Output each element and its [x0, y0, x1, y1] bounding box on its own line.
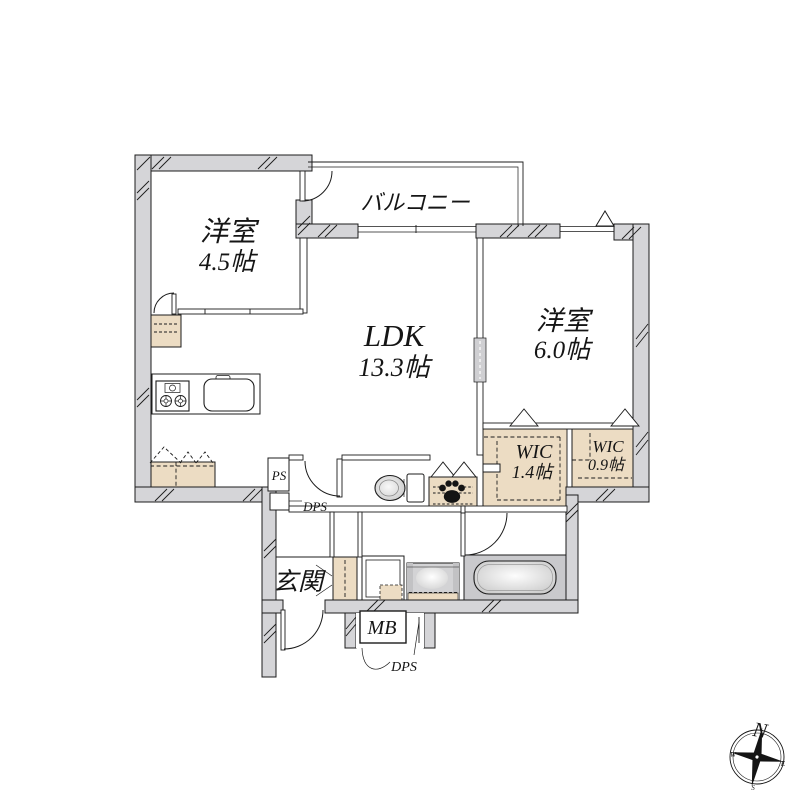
- label-ps: PS: [271, 468, 287, 483]
- wall-toilet-top-b: [342, 455, 430, 460]
- label-room-west60: 洋室: [536, 306, 594, 336]
- wall-bottom-a: [262, 600, 283, 613]
- bath-room: [464, 555, 566, 601]
- dps-side-box: [270, 493, 289, 510]
- floor-plan-page: 洋室 4.5帖 バルコニー LDK 13.3帖 洋室 6.0帖 WIC 1.4帖…: [0, 0, 800, 800]
- dps-bottom-leader-b: [362, 648, 390, 669]
- label-genkan: 玄関: [273, 568, 326, 596]
- size-ldk: 13.3帖: [358, 353, 434, 382]
- wall-right: [633, 224, 649, 492]
- label-dps-bottom: DPS: [390, 660, 417, 675]
- wall-top: [135, 155, 312, 171]
- label-wic14: WIC: [516, 441, 553, 463]
- wall-hall-top: [289, 506, 567, 512]
- size-room-west45: 4.5帖: [199, 249, 258, 276]
- toilet-icon: [375, 474, 424, 502]
- wic-divider-wall: [567, 429, 572, 487]
- west60-window-triangle: [596, 211, 614, 226]
- label-ldk: LDK: [363, 318, 427, 353]
- label-room-west45: 洋室: [200, 217, 260, 248]
- wall-hall-vertical-b: [358, 512, 362, 557]
- wall-mb-pocket-right: [424, 613, 435, 648]
- size-room-west60: 6.0帖: [534, 337, 593, 364]
- label-balcony: バルコニー: [360, 190, 471, 215]
- size-wic14: 1.4帖: [512, 462, 556, 482]
- washbasin-icon: [407, 563, 459, 601]
- closet-west45: [150, 315, 181, 347]
- wall-washroom-left-stub: [461, 506, 465, 513]
- compass-east-label: E: [780, 760, 786, 768]
- floor-plan-drawing: 洋室 4.5帖 バルコニー LDK 13.3帖 洋室 6.0帖 WIC 1.4帖…: [0, 0, 800, 800]
- wall-west45-right: [300, 238, 307, 313]
- compass-south-label: S: [751, 784, 755, 792]
- west60-top-window: [560, 227, 614, 232]
- compass-north-label: N: [750, 717, 770, 743]
- label-wic09: WIC: [592, 437, 624, 456]
- stove-icon: [156, 381, 189, 411]
- compass-icon: N W E S: [725, 717, 789, 792]
- wall-toilet-top-a: [289, 455, 303, 460]
- wall-ldk-top-a: [296, 224, 358, 238]
- sink-icon: [204, 376, 254, 412]
- washing-machine-pan: [362, 556, 404, 601]
- wall-west45-bottom-sliding: [178, 309, 303, 314]
- wall-left: [135, 155, 151, 502]
- entrance-door: [281, 610, 323, 650]
- wall-hall-vertical-a: [330, 512, 334, 557]
- bathtub-icon: [474, 561, 556, 594]
- compass-west-label: W: [730, 751, 737, 759]
- label-mb: MB: [367, 617, 397, 639]
- size-wic09: 0.9帖: [588, 456, 626, 474]
- label-dps-side: DPS: [302, 499, 327, 514]
- wic14-shelf-stub: [483, 464, 500, 472]
